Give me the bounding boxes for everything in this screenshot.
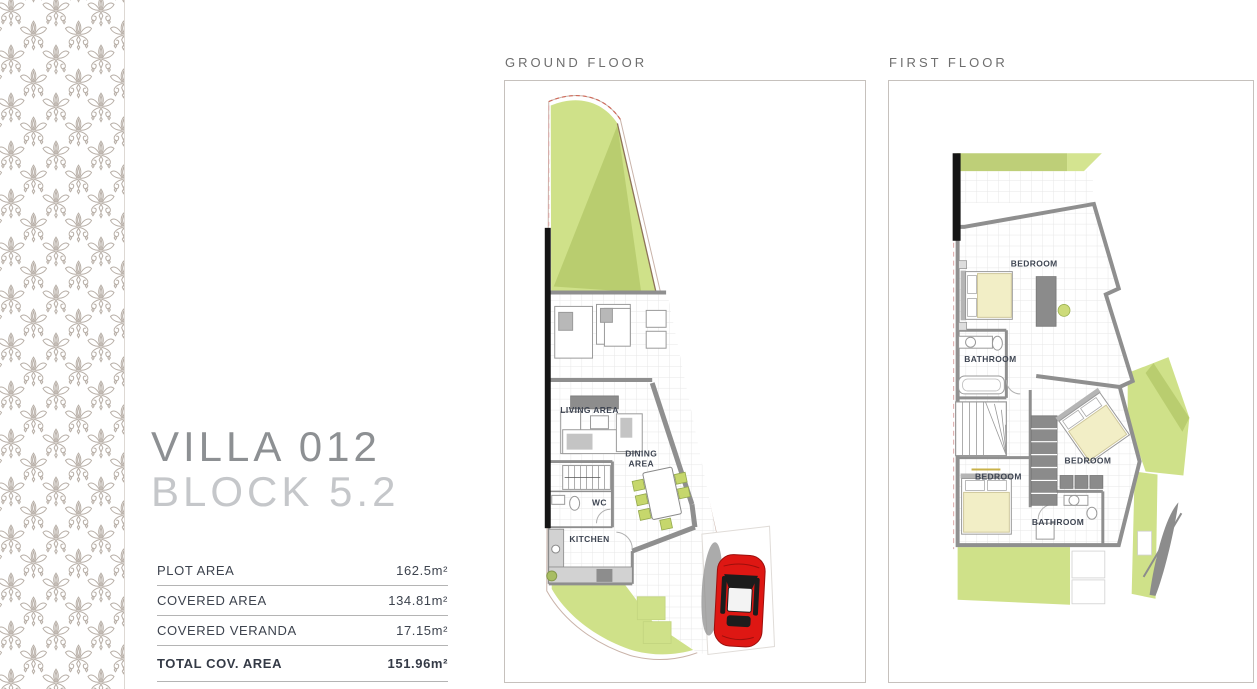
- car-icon: [713, 554, 765, 648]
- label-kitchen: KITCHEN: [569, 534, 609, 544]
- area-label: TOTAL COV. AREA: [157, 656, 282, 671]
- ground-floor-heading: GROUND FLOOR: [505, 55, 647, 70]
- villa-spec-page: { "villa": { "name": "VILLA 012", "block…: [0, 0, 1257, 689]
- label-bathroom-bottom: BATHROOM: [1032, 517, 1084, 527]
- villa-name: VILLA 012: [151, 424, 399, 469]
- label-living-area: LIVING AREA: [560, 405, 618, 415]
- area-label: COVERED AREA: [157, 593, 267, 608]
- villa-title-block: VILLA 012 BLOCK 5.2: [151, 424, 399, 514]
- table-row-covered-area: COVERED AREA 134.81m²: [157, 586, 448, 616]
- decorative-damask-strip: [0, 0, 125, 689]
- area-label: COVERED VERANDA: [157, 623, 297, 638]
- area-value: 162.5m²: [396, 563, 448, 578]
- boundary-wall: [545, 228, 551, 528]
- table-row-plot-area: PLOT AREA 162.5m²: [157, 556, 448, 586]
- label-bedroom-left: BEDROOM: [975, 471, 1022, 481]
- staircase: [956, 402, 1007, 456]
- area-value: 134.81m²: [388, 593, 448, 608]
- label-dining-line2: AREA: [628, 459, 653, 469]
- closet-row: [1060, 475, 1103, 488]
- boundary-wall: [953, 153, 961, 241]
- table-row-total-covered-area: TOTAL COV. AREA 151.96m²: [157, 646, 448, 682]
- area-value: 17.15m²: [396, 623, 448, 638]
- roof-strip: [957, 153, 1067, 171]
- garden-bottom: [958, 547, 1070, 605]
- first-floor-plan: BEDROOM BATHROOM BEDROOM BEDROOM BATHROO…: [888, 80, 1254, 683]
- label-bedroom-right: BEDROOM: [1064, 456, 1111, 466]
- roof-strip-end: [1067, 153, 1102, 171]
- label-bedroom-top: BEDROOM: [1011, 259, 1058, 269]
- staircase: [563, 466, 611, 490]
- label-bathroom-top: BATHROOM: [964, 354, 1016, 364]
- damask-pattern-icon: [0, 0, 125, 689]
- villa-block-number: BLOCK 5.2: [151, 469, 399, 514]
- first-floor-heading: FIRST FLOOR: [889, 55, 1008, 70]
- table-row-covered-veranda: COVERED VERANDA 17.15m²: [157, 616, 448, 646]
- label-wc: WC: [592, 497, 607, 507]
- ground-floor-plan: LIVING AREA DINING AREA WC KITCHEN: [504, 80, 866, 683]
- area-table: PLOT AREA 162.5m² COVERED AREA 134.81m² …: [157, 556, 448, 682]
- area-label: PLOT AREA: [157, 563, 234, 578]
- area-value: 151.96m²: [388, 656, 448, 671]
- label-dining-line1: DINING: [625, 449, 657, 459]
